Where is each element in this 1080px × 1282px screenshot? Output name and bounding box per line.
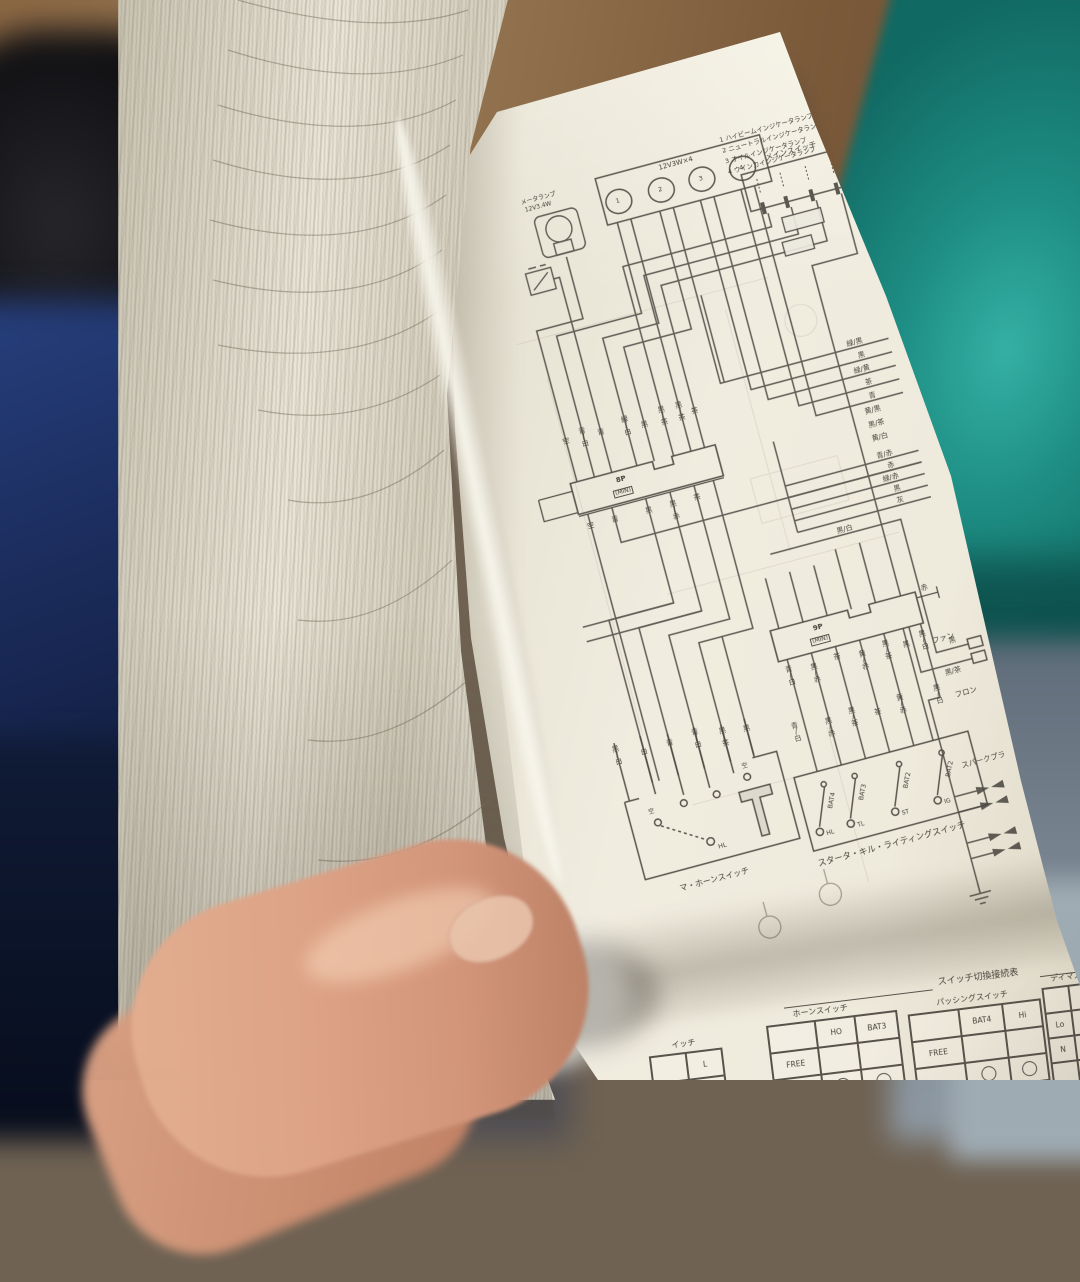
contact-circle [700, 1083, 717, 1100]
cell [653, 1080, 692, 1111]
photo-vignette [0, 0, 1080, 1080]
cell [689, 1075, 728, 1106]
